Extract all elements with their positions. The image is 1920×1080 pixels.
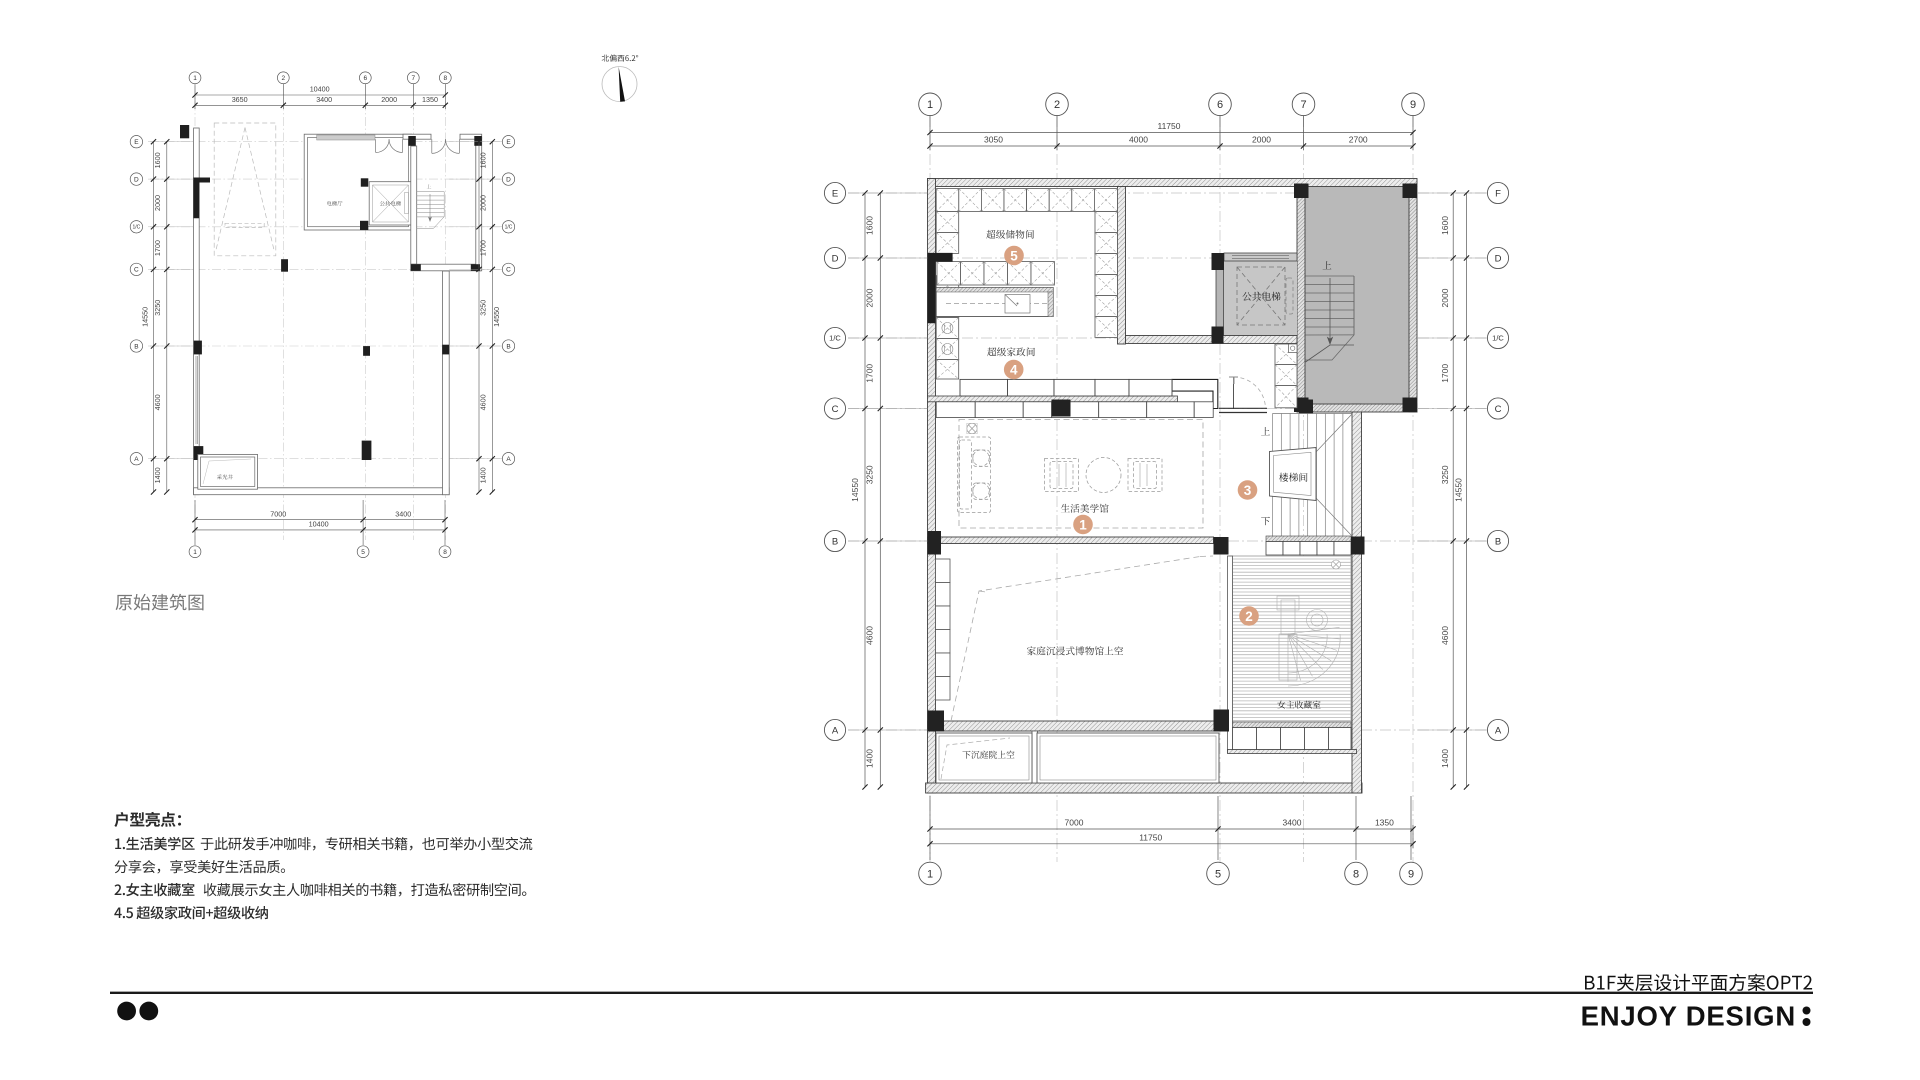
svg-text:7: 7 [1300,99,1306,111]
svg-text:6: 6 [1217,99,1223,111]
svg-text:1400: 1400 [865,749,875,768]
svg-text:9: 9 [1410,99,1416,111]
svg-text:8: 8 [1353,868,1359,880]
svg-text:14550: 14550 [850,478,860,502]
svg-text:1: 1 [927,868,933,880]
svg-text:5: 5 [361,549,365,556]
svg-text:4000: 4000 [1129,135,1148,145]
svg-text:2000: 2000 [865,288,875,307]
svg-text:D: D [134,176,139,183]
svg-text:14550: 14550 [492,307,501,327]
svg-text:6: 6 [363,75,367,82]
svg-text:2000: 2000 [479,195,488,211]
svg-text:1350: 1350 [422,95,438,104]
svg-text:C: C [832,404,839,415]
svg-text:D: D [832,253,839,264]
svg-text:1600: 1600 [865,216,875,235]
svg-text:B: B [1495,536,1501,547]
svg-text:8: 8 [443,549,447,556]
svg-text:C: C [506,267,511,274]
svg-text:2: 2 [1245,609,1253,624]
svg-text:1600: 1600 [153,152,162,168]
svg-text:3050: 3050 [984,135,1003,145]
svg-text:3250: 3250 [865,465,875,484]
svg-text:5: 5 [1010,248,1018,263]
svg-text:1700: 1700 [1440,364,1450,383]
svg-text:3250: 3250 [479,300,488,316]
svg-text:B: B [134,343,138,350]
svg-text:1: 1 [193,549,197,556]
svg-text:B: B [506,343,510,350]
svg-text:2: 2 [1054,99,1060,111]
svg-text:9: 9 [1408,868,1414,880]
svg-text:2000: 2000 [1440,288,1450,307]
svg-text:2000: 2000 [1252,135,1271,145]
svg-text:3400: 3400 [1283,818,1302,828]
svg-text:D: D [506,176,511,183]
svg-text:4600: 4600 [865,626,875,645]
svg-text:3650: 3650 [232,95,248,104]
svg-text:ENJOY DESIGN: ENJOY DESIGN [1581,1001,1796,1032]
svg-text:7: 7 [411,75,415,82]
svg-text:A: A [832,725,839,736]
svg-text:3400: 3400 [395,510,411,519]
svg-text:C: C [134,267,139,274]
svg-text:F: F [1495,188,1501,199]
svg-text:1400: 1400 [153,467,162,483]
svg-text:1: 1 [927,99,933,111]
svg-text:1700: 1700 [479,240,488,256]
svg-text:10400: 10400 [310,85,330,94]
svg-text:2000: 2000 [381,95,397,104]
svg-text:3400: 3400 [316,95,332,104]
svg-text:A: A [1495,725,1502,736]
svg-text:1/C: 1/C [1492,334,1504,343]
svg-text:2000: 2000 [153,195,162,211]
svg-text:8: 8 [443,75,447,82]
svg-text:4600: 4600 [153,394,162,410]
svg-text:11750: 11750 [1139,833,1162,843]
svg-text:4600: 4600 [1440,626,1450,645]
svg-text:1400: 1400 [479,467,488,483]
svg-text:A: A [134,456,139,463]
svg-text:1700: 1700 [153,240,162,256]
svg-text:E: E [506,139,511,146]
svg-text:C: C [1495,404,1502,415]
svg-text:1400: 1400 [1440,749,1450,768]
svg-text:3250: 3250 [153,300,162,316]
svg-text:10400: 10400 [309,520,329,529]
svg-text:4: 4 [1010,362,1018,377]
svg-text:A: A [506,456,511,463]
svg-text:1/C: 1/C [133,225,141,231]
svg-text:14550: 14550 [1454,478,1464,502]
svg-text:1/C: 1/C [829,334,841,343]
svg-text:5: 5 [1215,868,1221,880]
svg-text:1350: 1350 [1375,818,1394,828]
svg-text:3250: 3250 [1440,465,1450,484]
svg-text:4600: 4600 [479,394,488,410]
svg-text:2: 2 [281,75,285,82]
svg-text:1700: 1700 [865,364,875,383]
svg-text:B: B [832,536,838,547]
svg-text:3: 3 [1244,483,1252,498]
svg-text:1600: 1600 [1440,216,1450,235]
svg-text:7000: 7000 [1065,818,1084,828]
svg-text:7000: 7000 [270,510,286,519]
svg-text:2700: 2700 [1349,135,1368,145]
svg-text:D: D [1495,253,1502,264]
svg-text:11750: 11750 [1157,121,1180,131]
svg-text:E: E [134,139,139,146]
svg-text:1: 1 [193,75,197,82]
svg-text:1600: 1600 [479,152,488,168]
svg-text:1: 1 [1079,517,1087,532]
svg-text:14550: 14550 [140,307,149,327]
svg-text:E: E [832,188,838,199]
svg-text:1/C: 1/C [505,225,513,231]
